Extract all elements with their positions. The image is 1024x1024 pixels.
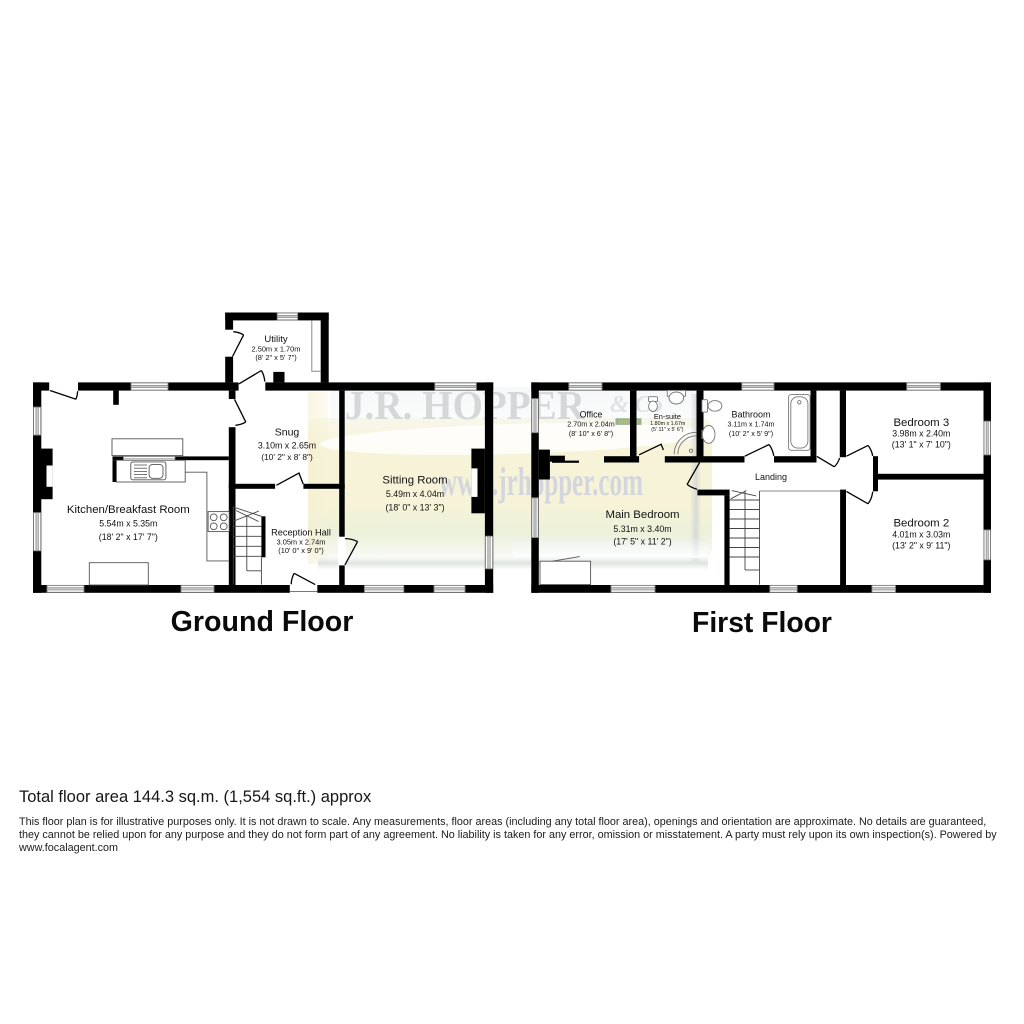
svg-text:1.80m x 1.67m: 1.80m x 1.67m (650, 421, 686, 427)
svg-text:(10' 0" x 9' 0"): (10' 0" x 9' 0") (278, 546, 323, 555)
svg-text:(8' 10" x 6' 8"): (8' 10" x 6' 8") (569, 429, 613, 438)
svg-text:(18' 0" x 13' 3"): (18' 0" x 13' 3") (386, 503, 445, 513)
svg-text:Bathroom: Bathroom (731, 410, 770, 420)
svg-text:(17' 5" x 11' 2"): (17' 5" x 11' 2") (613, 537, 671, 547)
svg-text:Landing: Landing (755, 472, 787, 482)
svg-text:Utility: Utility (264, 334, 287, 345)
svg-text:3.10m x 2.65m: 3.10m x 2.65m (258, 441, 316, 451)
svg-text:3.11m x 1.74m: 3.11m x 1.74m (727, 420, 774, 429)
svg-text:2.70m x 2.04m: 2.70m x 2.04m (567, 420, 615, 429)
svg-text:En-suite: En-suite (654, 412, 681, 421)
svg-text:4.01m x 3.03m: 4.01m x 3.03m (892, 530, 950, 540)
svg-text:Kitchen/Breakfast Room: Kitchen/Breakfast Room (67, 504, 190, 516)
svg-text:(18' 2" x 17' 7"): (18' 2" x 17' 7") (99, 532, 158, 542)
svg-text:Bedroom 2: Bedroom 2 (893, 518, 949, 530)
svg-text:Bedroom 3: Bedroom 3 (893, 417, 949, 429)
svg-text:(8' 2" x 5' 7"): (8' 2" x 5' 7") (255, 353, 296, 362)
svg-text:Snug: Snug (275, 427, 300, 439)
svg-text:Sitting Room: Sitting Room (382, 475, 447, 487)
svg-text:2.50m x 1.70m: 2.50m x 1.70m (252, 344, 301, 353)
svg-text:5.31m x 3.40m: 5.31m x 3.40m (613, 524, 671, 534)
svg-text:3.05m x 2.74m: 3.05m x 2.74m (277, 537, 326, 546)
svg-text:5.49m x 4.04m: 5.49m x 4.04m (386, 489, 444, 499)
svg-text:(13' 1" x 7' 10"): (13' 1" x 7' 10") (892, 440, 951, 450)
svg-text:(10' 2" x 8' 8"): (10' 2" x 8' 8") (261, 452, 313, 462)
svg-text:(13' 2" x 9' 11"): (13' 2" x 9' 11") (892, 541, 950, 551)
svg-text:5.54m x 5.35m: 5.54m x 5.35m (99, 519, 157, 529)
svg-text:Office: Office (580, 410, 603, 420)
svg-text:3.98m x 2.40m: 3.98m x 2.40m (892, 429, 950, 439)
svg-text:(5' 11" x 5' 6"): (5' 11" x 5' 6") (651, 427, 683, 433)
svg-text:Main Bedroom: Main Bedroom (605, 509, 679, 521)
svg-text:Reception Hall: Reception Hall (271, 528, 331, 538)
svg-text:(10' 2" x 5' 9"): (10' 2" x 5' 9") (729, 429, 773, 438)
